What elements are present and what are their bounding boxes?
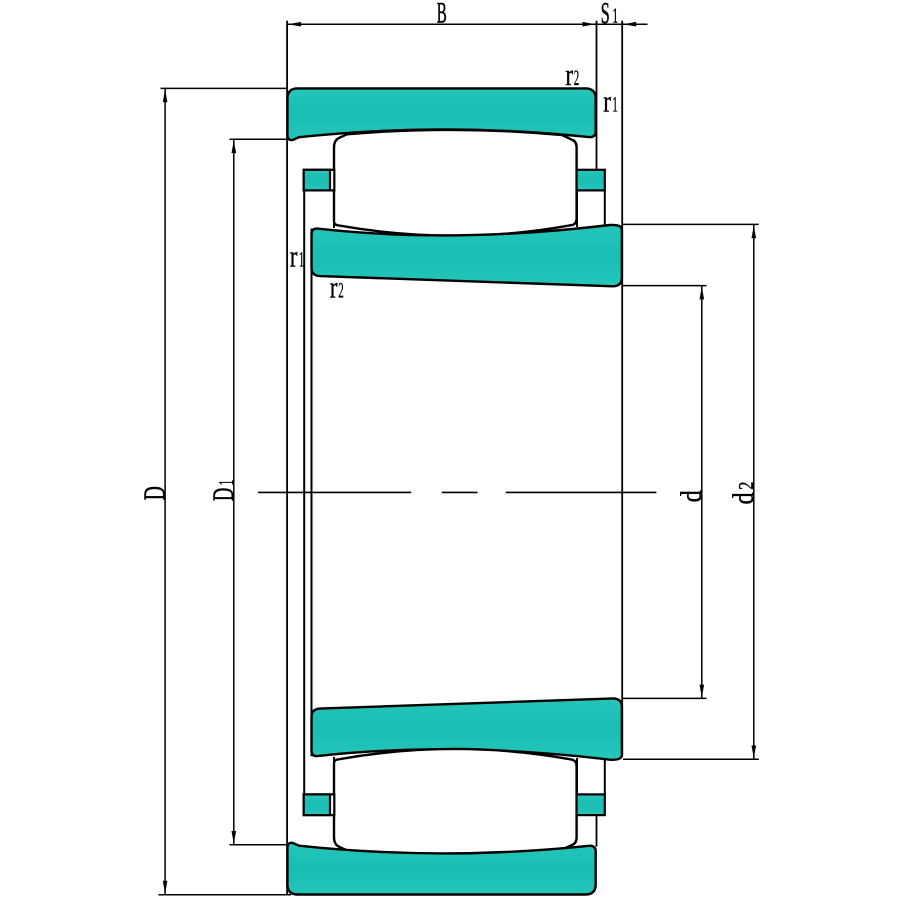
svg-text:1: 1 xyxy=(612,4,618,28)
svg-text:1: 1 xyxy=(214,480,238,486)
svg-text:D: D xyxy=(208,488,240,501)
svg-text:2: 2 xyxy=(735,482,758,490)
svg-text:1: 1 xyxy=(299,248,304,272)
svg-text:r: r xyxy=(290,239,298,273)
svg-text:2: 2 xyxy=(574,66,579,90)
svg-text:d: d xyxy=(726,492,759,504)
svg-text:r: r xyxy=(565,58,573,92)
svg-text:r: r xyxy=(330,270,338,304)
svg-text:d: d xyxy=(674,490,707,502)
svg-text:B: B xyxy=(437,0,447,30)
svg-text:D: D xyxy=(137,486,172,500)
svg-text:r: r xyxy=(603,84,611,118)
svg-text:1: 1 xyxy=(612,93,617,117)
svg-text:2: 2 xyxy=(338,279,343,303)
svg-text:S: S xyxy=(601,0,610,30)
